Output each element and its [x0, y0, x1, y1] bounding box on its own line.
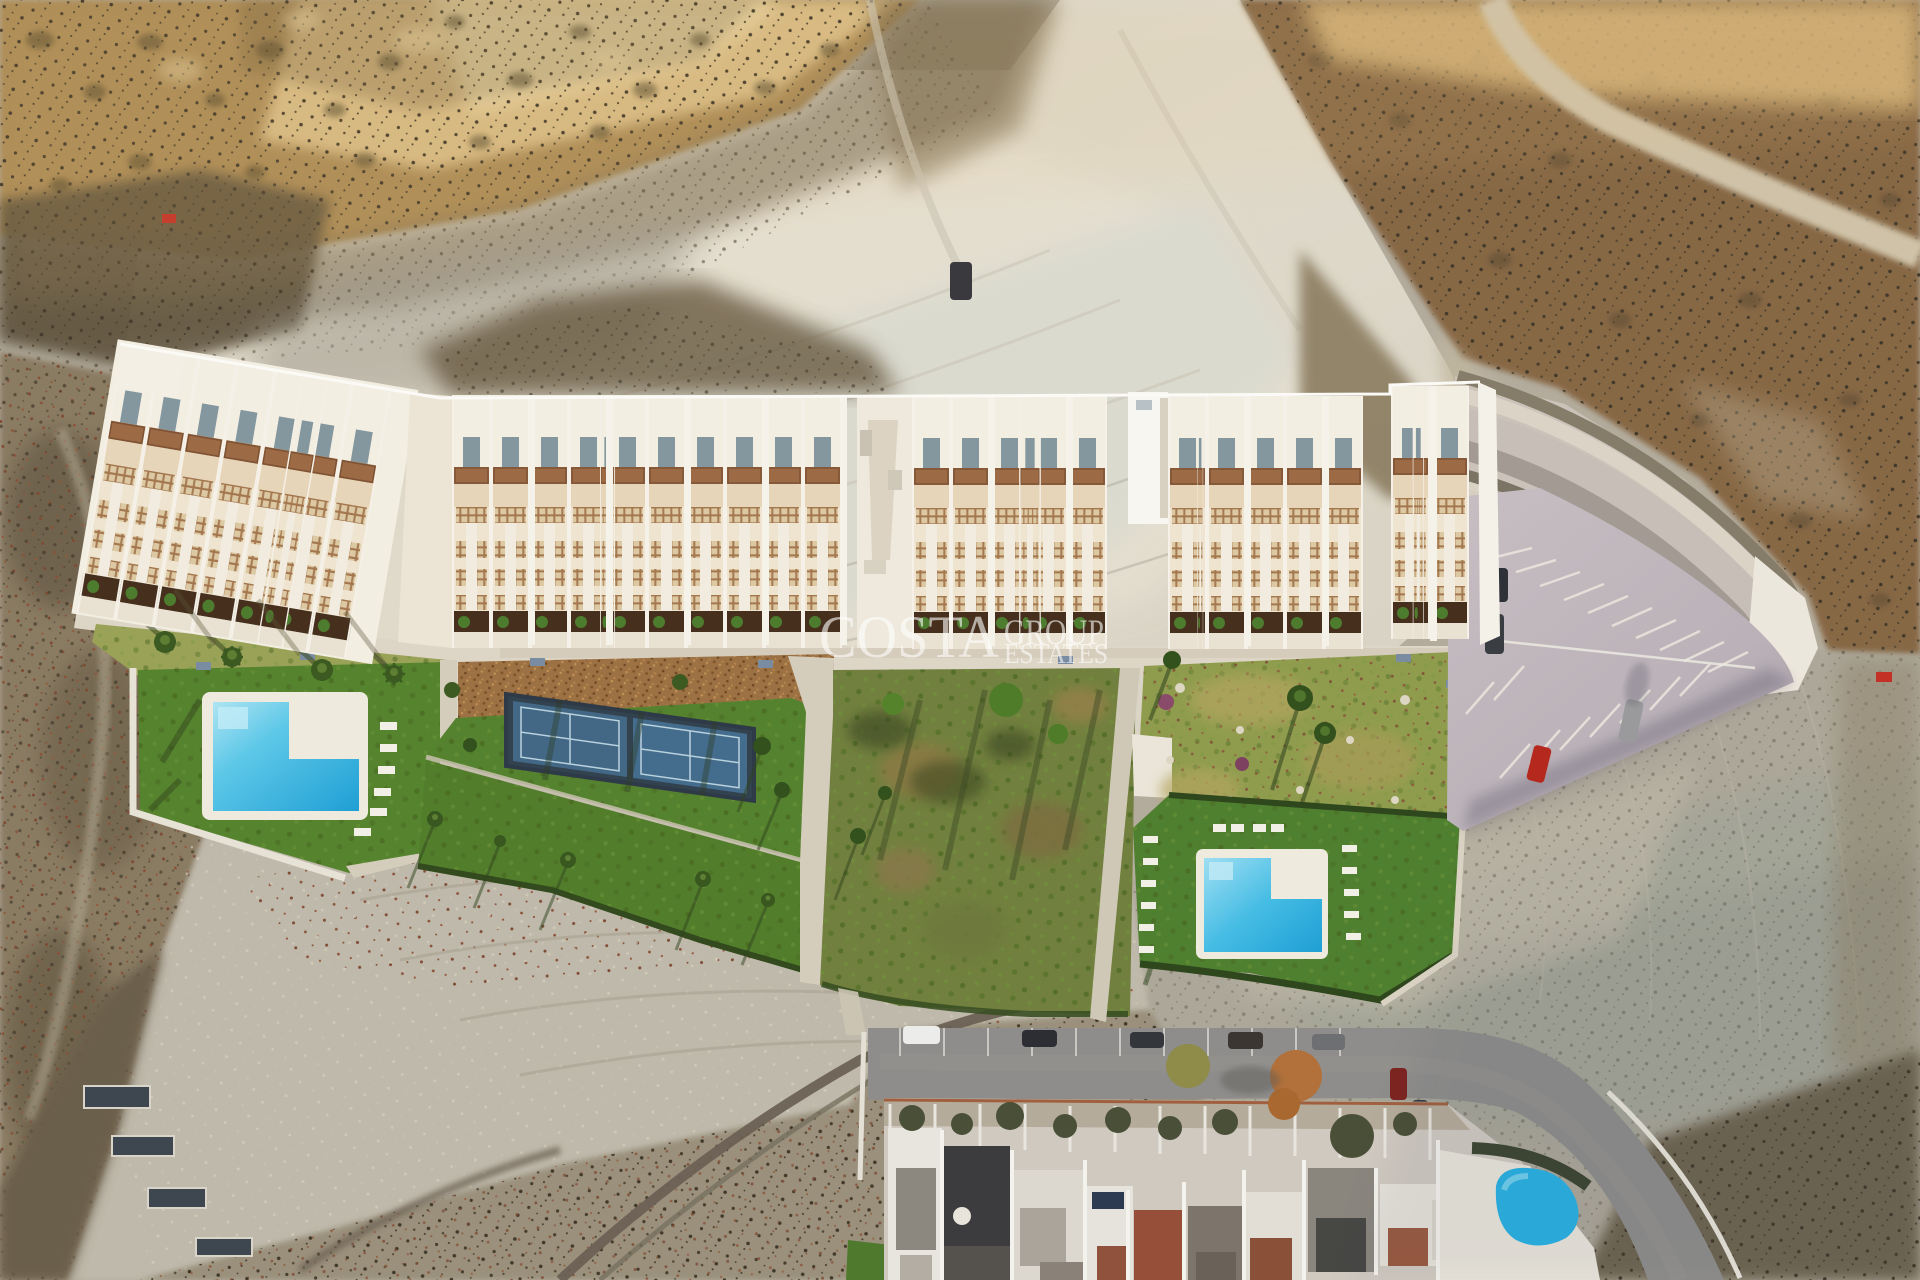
svg-text:COSTA: COSTA	[819, 604, 999, 670]
svg-text:ESTATES: ESTATES	[1004, 638, 1108, 670]
